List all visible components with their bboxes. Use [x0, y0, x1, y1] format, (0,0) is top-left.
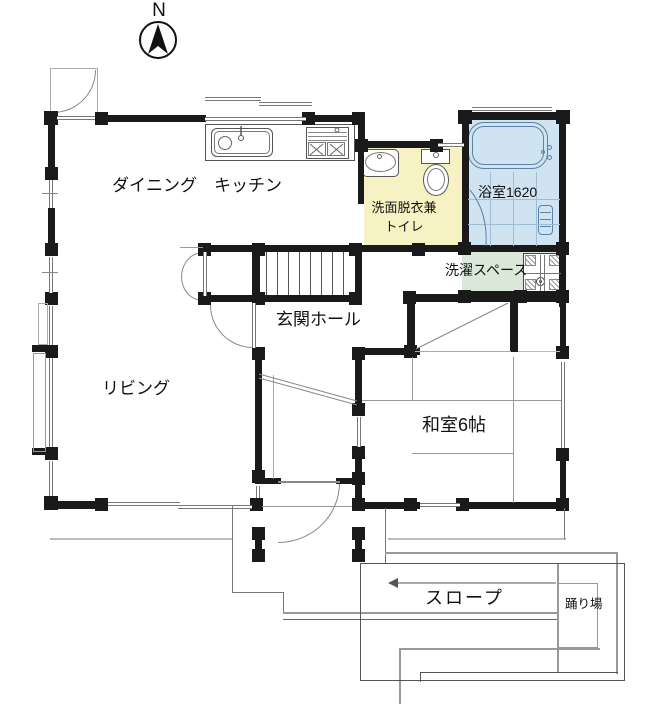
wall-post — [95, 498, 108, 511]
wall-segment — [103, 115, 206, 122]
wall-post — [556, 290, 569, 303]
window — [49, 180, 53, 208]
shower-seat — [538, 205, 553, 235]
window — [205, 117, 306, 121]
room-label-living: リビング — [102, 379, 170, 399]
wall-post — [252, 470, 265, 483]
plan-line — [385, 552, 618, 554]
wall-post — [556, 498, 569, 511]
wall-segment — [462, 112, 566, 120]
plan-line — [262, 506, 352, 507]
entrance-door-arc — [278, 483, 340, 543]
window — [178, 505, 252, 509]
plan-line — [362, 400, 561, 401]
window — [420, 503, 460, 507]
lavatory-faucet — [377, 154, 382, 159]
toilet-button — [433, 152, 439, 158]
plan-line — [232, 505, 233, 593]
window — [357, 417, 361, 447]
room-label-hall: 玄関ホール — [276, 310, 361, 330]
window — [561, 362, 565, 448]
outline-rect — [308, 142, 326, 156]
closet-diagonal-line — [416, 303, 508, 349]
plan-line — [564, 508, 565, 539]
window — [259, 102, 312, 106]
plan-line — [468, 224, 560, 225]
wall-post — [556, 448, 569, 461]
plan-line — [525, 273, 561, 274]
outline-rect — [33, 353, 46, 452]
wall-post — [352, 112, 365, 125]
washer-pan-corner — [525, 279, 536, 290]
wall-segment — [510, 300, 518, 352]
window — [438, 143, 464, 147]
wall-segment — [198, 245, 362, 252]
wall-segment — [462, 118, 469, 250]
outline-rect — [38, 303, 48, 345]
wall-post — [252, 347, 265, 360]
plan-line — [513, 357, 514, 503]
plan-line — [42, 272, 58, 273]
wall-segment — [358, 146, 364, 204]
window — [49, 306, 53, 345]
wall-post — [556, 346, 569, 359]
wall-post — [44, 111, 58, 125]
wall-post — [252, 527, 265, 540]
room-label-bathroom: 浴室1620 — [478, 184, 537, 200]
bathtub-inner — [472, 126, 544, 165]
wall-post — [412, 243, 425, 256]
wall-post — [458, 242, 471, 255]
wall-segment — [252, 250, 260, 296]
window — [205, 97, 261, 101]
plan-line — [343, 252, 344, 295]
wall-post — [45, 345, 58, 358]
compass-circle — [139, 21, 177, 59]
wall-post — [514, 290, 527, 303]
window — [108, 502, 180, 506]
plan-line — [540, 226, 551, 227]
wall-segment — [255, 352, 262, 478]
plan-line — [412, 357, 413, 401]
plan-line — [321, 252, 322, 295]
plan-line — [288, 252, 289, 295]
plan-line — [308, 140, 347, 141]
bath-control-dot1 — [547, 145, 552, 150]
plan-line — [518, 351, 560, 352]
wall-post — [355, 139, 368, 152]
plan-line — [412, 453, 514, 454]
wall-post — [45, 243, 58, 256]
window — [49, 358, 53, 447]
living-hall-door-arc — [210, 305, 253, 348]
wall-segment — [360, 141, 438, 148]
wall-post — [404, 498, 417, 511]
wall-post — [556, 242, 569, 255]
wall-post — [352, 472, 365, 485]
wall-post — [352, 549, 365, 562]
plan-line — [540, 219, 551, 220]
wall-segment — [198, 295, 362, 302]
wall-post — [44, 496, 58, 510]
room-label-laundry: 洗濯スペース — [445, 262, 527, 278]
plan-line — [50, 538, 232, 540]
wall-segment — [559, 113, 566, 307]
plan-line — [310, 252, 311, 295]
window — [203, 252, 207, 296]
window — [256, 486, 260, 498]
bath-control-dot3 — [541, 150, 545, 154]
wall-segment — [48, 208, 55, 246]
wall-segment — [464, 502, 566, 509]
plan-line — [332, 252, 333, 295]
wall-post — [458, 110, 472, 124]
wall-segment — [405, 294, 567, 302]
plan-line — [278, 481, 340, 483]
wall-post — [252, 549, 265, 562]
floor-plan: N ダイニング キッチン 洗面脱衣兼 トイレ 浴室1620 洗濯スペース 玄関ホ… — [0, 0, 659, 717]
label-landing: 踊り場 — [565, 597, 603, 611]
plan-line — [180, 247, 203, 248]
window — [472, 107, 552, 111]
outline-rect — [327, 142, 345, 156]
window — [252, 303, 256, 348]
plan-line — [283, 592, 284, 614]
room-label-washroom-2: トイレ — [366, 220, 442, 235]
room-label-dining-kitchen: ダイニング キッチン — [112, 176, 282, 196]
wall-post — [349, 292, 362, 305]
compass-label: N — [147, 0, 171, 22]
wall-post — [45, 447, 58, 460]
wall-post — [352, 403, 365, 416]
plan-line — [232, 592, 284, 593]
plan-line — [415, 351, 511, 352]
room-label-japanese-room: 和室6帖 — [422, 415, 486, 436]
window — [57, 116, 95, 120]
plan-line — [273, 375, 274, 479]
wall-post — [349, 243, 362, 256]
plan-line — [42, 193, 58, 194]
plan-line — [385, 508, 386, 564]
plan-line — [308, 132, 347, 133]
plan-line — [388, 538, 566, 540]
wall-post — [352, 498, 365, 511]
wall-segment — [310, 115, 356, 122]
label-ramp: スロープ — [425, 588, 504, 609]
kitchen-sink-drain — [218, 136, 232, 150]
plan-line — [540, 212, 551, 213]
wall-post — [352, 347, 365, 360]
wall-segment — [48, 120, 55, 168]
wall-post — [556, 110, 570, 124]
plan-line — [299, 252, 300, 295]
outline-rect — [557, 583, 598, 648]
window — [49, 257, 53, 293]
wall-post — [95, 112, 108, 125]
wall-post — [458, 290, 471, 303]
wall-post — [45, 167, 58, 180]
toilet-seat — [427, 168, 445, 191]
bath-control-dot2 — [547, 155, 552, 160]
plan-line — [308, 136, 347, 137]
window — [49, 461, 53, 496]
plan-line — [277, 252, 278, 295]
plan-line — [266, 252, 267, 295]
wall-post — [252, 243, 265, 256]
wall-post — [352, 527, 365, 540]
wall-post — [403, 291, 416, 304]
wall-post — [352, 446, 365, 459]
room-label-washroom-1: 洗面脱衣兼 — [366, 201, 442, 216]
